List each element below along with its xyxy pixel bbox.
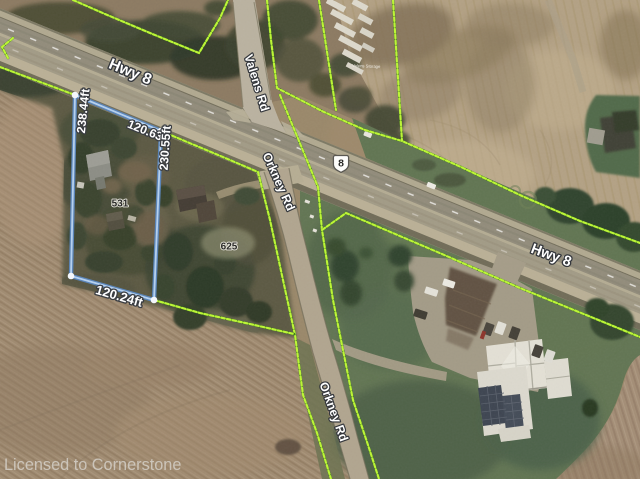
svg-text:8: 8: [338, 158, 344, 170]
svg-text:625: 625: [221, 242, 238, 253]
svg-text:531: 531: [112, 199, 129, 210]
svg-text:Licensed to Cornerstone: Licensed to Cornerstone: [4, 456, 181, 474]
